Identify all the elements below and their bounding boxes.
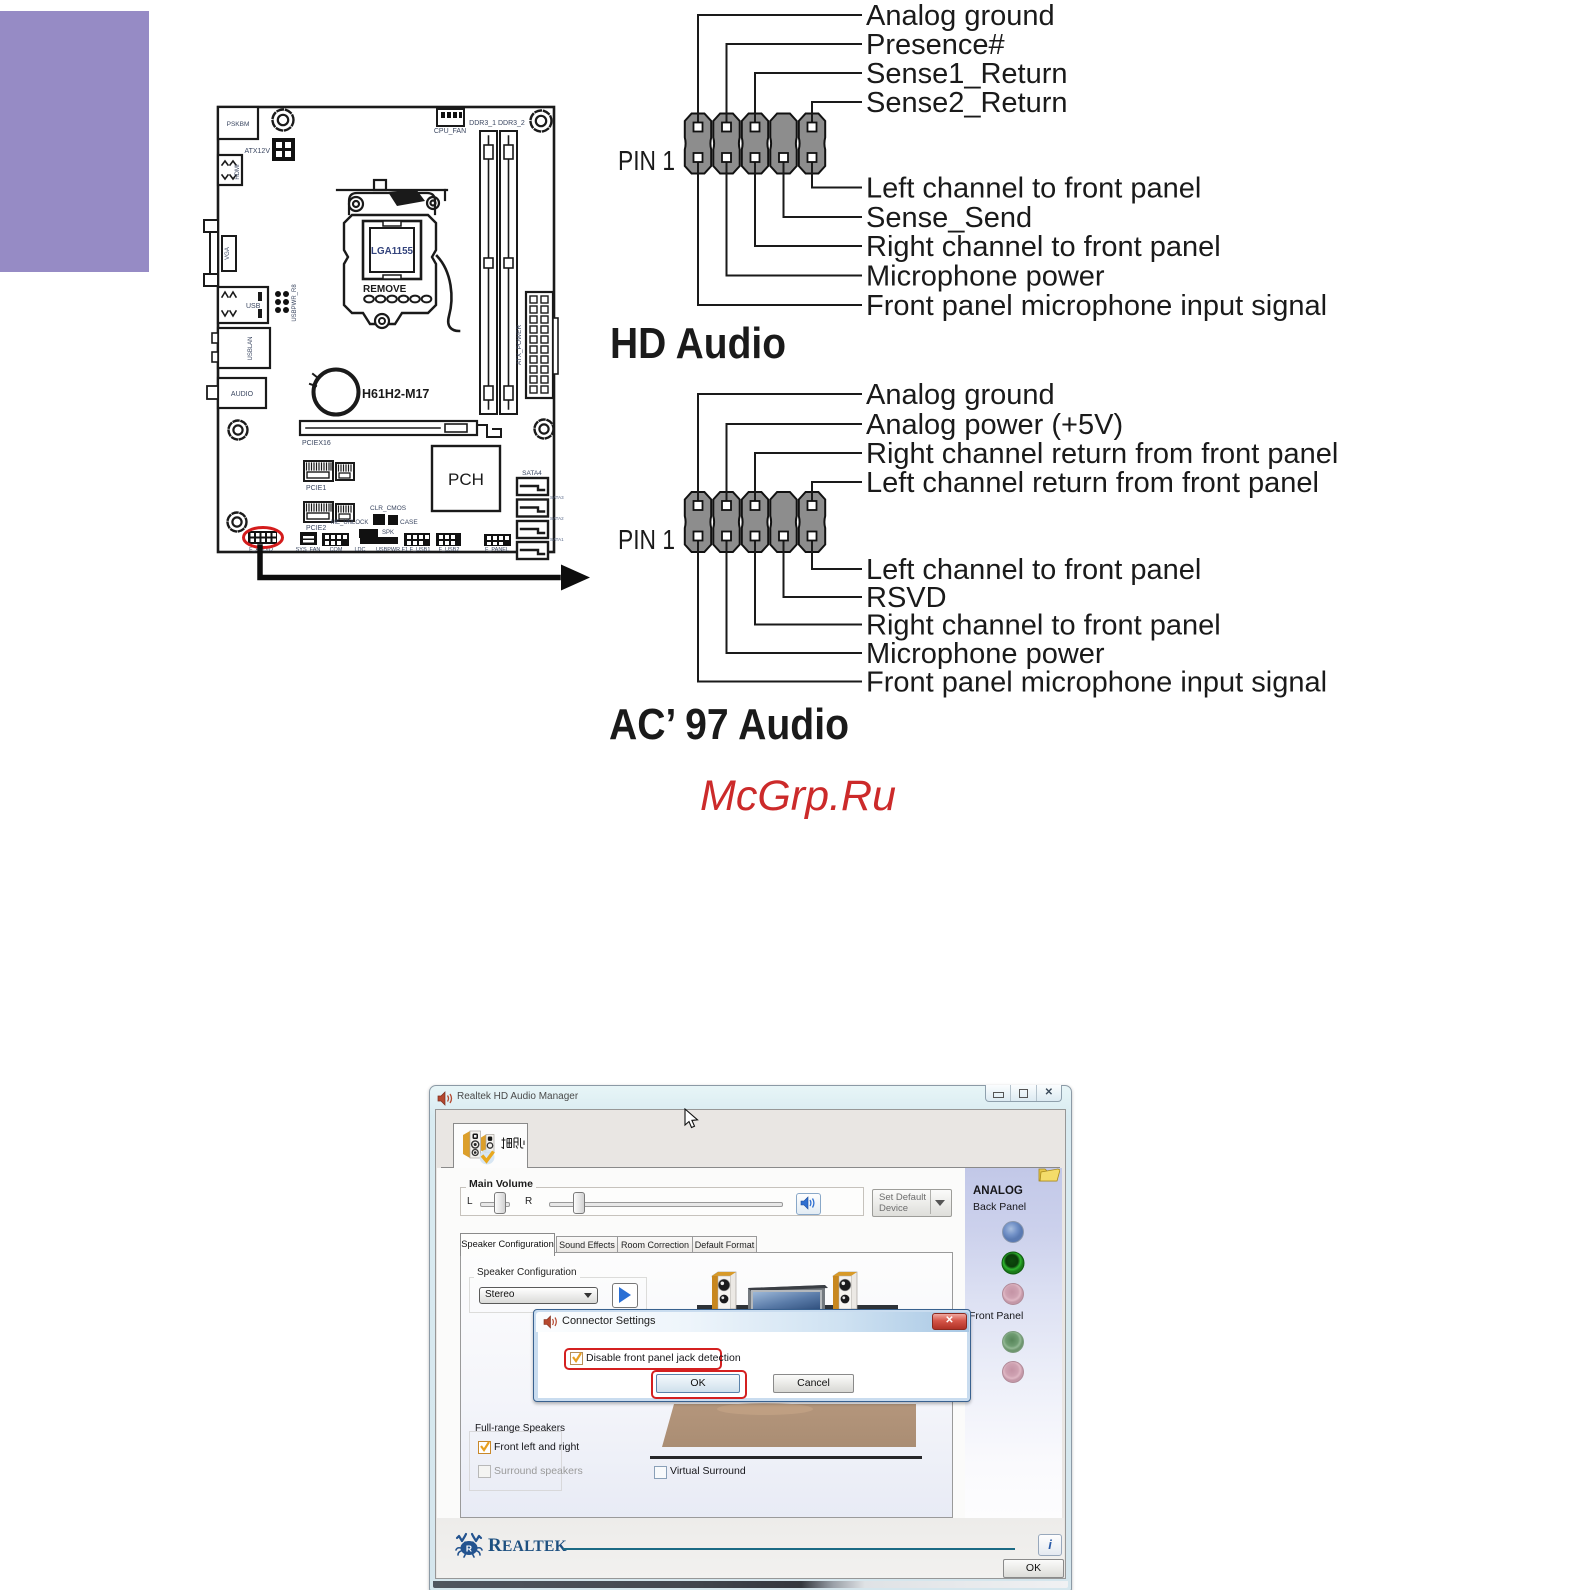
svg-text:AC’ 97 Audio: AC’ 97 Audio (609, 700, 849, 749)
svg-text:F_USB1: F_USB1 (410, 547, 431, 553)
svg-text:USBPWR_R8: USBPWR_R8 (292, 284, 298, 322)
svg-text:Analog ground: Analog ground (866, 0, 1055, 32)
svg-text:CASE: CASE (400, 519, 418, 526)
svg-text:CLR_CMOS: CLR_CMOS (370, 505, 407, 512)
svg-text:USB: USB (246, 303, 261, 310)
svg-text:ATX12V: ATX12V (244, 148, 270, 155)
svg-text:REMOVE: REMOVE (363, 284, 407, 295)
svg-text:ATX_POWER: ATX_POWER (516, 325, 523, 366)
svg-text:Microphone power: Microphone power (866, 638, 1105, 670)
svg-text:Sense1_Return: Sense1_Return (866, 58, 1068, 90)
svg-text:AUDIO: AUDIO (231, 391, 254, 398)
svg-text:LDC: LDC (354, 547, 365, 553)
svg-text:PIN 1: PIN 1 (618, 145, 675, 176)
svg-text:PIN 1: PIN 1 (618, 524, 675, 555)
svg-text:HD Audio: HD Audio (610, 319, 786, 368)
svg-text:Sense2_Return: Sense2_Return (866, 87, 1068, 119)
svg-text:Presence#: Presence# (866, 29, 1005, 61)
svg-text:HDMI: HDMI (235, 164, 241, 180)
svg-text:SATA3: SATA3 (550, 495, 564, 500)
svg-text:Front panel microphone input s: Front panel microphone input signal (866, 290, 1327, 322)
svg-text:Analog ground: Analog ground (866, 379, 1055, 411)
svg-text:SATA2: SATA2 (550, 516, 564, 521)
svg-text:SPK: SPK (382, 530, 394, 536)
svg-text:Analog power (+5V): Analog power (+5V) (866, 409, 1123, 441)
svg-text:Right channel to front panel: Right channel to front panel (866, 231, 1221, 263)
svg-text:Sense_Send: Sense_Send (866, 202, 1032, 234)
svg-text:PCH: PCH (448, 470, 484, 489)
svg-text:Left channel to front panel: Left channel to front panel (866, 173, 1201, 205)
svg-text:Right channel return from fron: Right channel return from front panel (866, 438, 1338, 470)
svg-text:COM: COM (330, 547, 343, 553)
svg-text:F_USB2: F_USB2 (439, 547, 460, 553)
svg-text:Front panel microphone input s: Front panel microphone input signal (866, 667, 1327, 699)
svg-text:SATA1: SATA1 (550, 537, 564, 542)
svg-text:PCIEX16: PCIEX16 (302, 440, 331, 447)
svg-text:H61H2-M17: H61H2-M17 (362, 387, 429, 401)
svg-text:PCIE2: PCIE2 (306, 525, 326, 532)
svg-text:Left channel return from front: Left channel return from front panel (866, 467, 1319, 499)
svg-text:ME_UNLOCK: ME_UNLOCK (331, 520, 368, 526)
svg-text:SYS_FAN: SYS_FAN (296, 547, 321, 553)
svg-text:Microphone power: Microphone power (866, 261, 1105, 293)
svg-text:McGrp.Ru: McGrp.Ru (700, 772, 896, 820)
svg-text:Right channel to front panel: Right channel to front panel (866, 610, 1221, 642)
svg-text:PSKBM: PSKBM (227, 121, 250, 128)
svg-text:USBLAN: USBLAN (248, 336, 254, 360)
svg-text:CPU_FAN: CPU_FAN (434, 128, 466, 135)
svg-text:USBPWR F1: USBPWR F1 (376, 547, 408, 553)
svg-text:DDR3_1 DDR3_2: DDR3_1 DDR3_2 (469, 120, 525, 127)
svg-text:F_PANEL: F_PANEL (485, 547, 509, 553)
svg-text:VGA: VGA (225, 247, 231, 260)
svg-text:LGA1155: LGA1155 (371, 245, 413, 257)
svg-text:PCIE1: PCIE1 (306, 485, 326, 492)
svg-text:SATA4: SATA4 (522, 470, 542, 477)
svg-text:R: R (466, 1544, 472, 1554)
